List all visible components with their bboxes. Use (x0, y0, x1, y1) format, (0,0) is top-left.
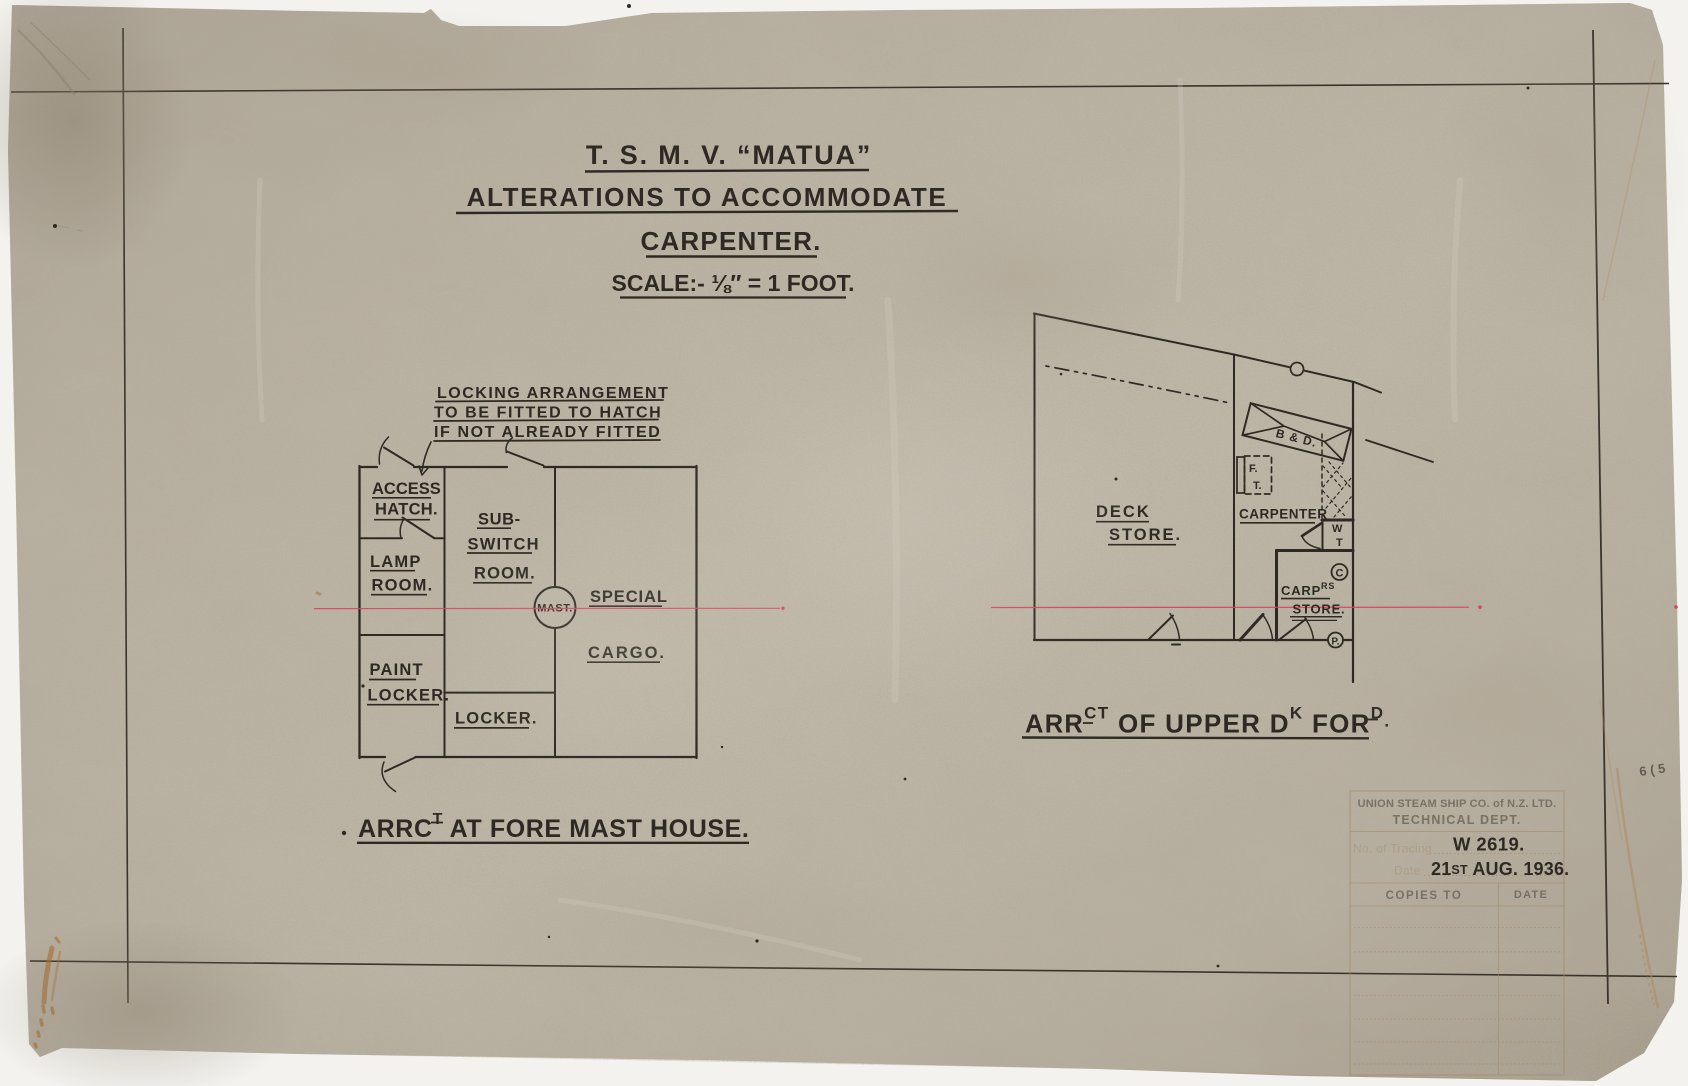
svg-text:ARRCT AT FORE MAST HOUSE.: ARRCT AT FORE MAST HOUSE. (358, 811, 749, 843)
svg-text:Date: Date (1394, 864, 1421, 878)
svg-text:DATE: DATE (1514, 889, 1548, 901)
svg-text:SCALE:- ⅛″ = 1 FOOT.: SCALE:- ⅛″ = 1 FOOT. (612, 270, 855, 296)
svg-text:CARPENTER.: CARPENTER. (640, 226, 821, 256)
svg-text:ROOM.: ROOM. (372, 577, 434, 595)
svg-text:HATCH.: HATCH. (375, 501, 438, 519)
svg-text:No. of Tracing: No. of Tracing (1353, 842, 1432, 856)
svg-text:LAMP: LAMP (370, 553, 422, 571)
svg-text:TECHNICAL DEPT.: TECHNICAL DEPT. (1393, 813, 1522, 827)
svg-text:PAINT: PAINT (370, 661, 424, 679)
svg-text:IF NOT ALREADY FITTED: IF NOT ALREADY FITTED (434, 424, 661, 441)
svg-text:ALTERATIONS TO ACCOMMODATE: ALTERATIONS TO ACCOMMODATE (467, 182, 948, 212)
svg-text:STORE.: STORE. (1293, 602, 1346, 617)
svg-text:W: W (1332, 523, 1343, 535)
svg-text:W 2619.: W 2619. (1453, 834, 1525, 855)
svg-text:T: T (1336, 537, 1343, 549)
svg-text:T.: T. (1253, 480, 1262, 492)
svg-text:F.: F. (1249, 463, 1258, 475)
svg-text:COPIES TO: COPIES TO (1386, 890, 1463, 902)
svg-text:T. S. M. V. “MATUA”: T. S. M. V. “MATUA” (586, 140, 872, 170)
svg-text:CARPENTER: CARPENTER (1239, 507, 1328, 522)
svg-text:ACCESS: ACCESS (372, 480, 441, 498)
svg-text:C: C (1336, 568, 1344, 580)
svg-text:P.: P. (1331, 637, 1339, 648)
svg-text:UNION STEAM SHIP CO. of N.Z. L: UNION STEAM SHIP CO. of N.Z. LTD. (1358, 798, 1557, 810)
